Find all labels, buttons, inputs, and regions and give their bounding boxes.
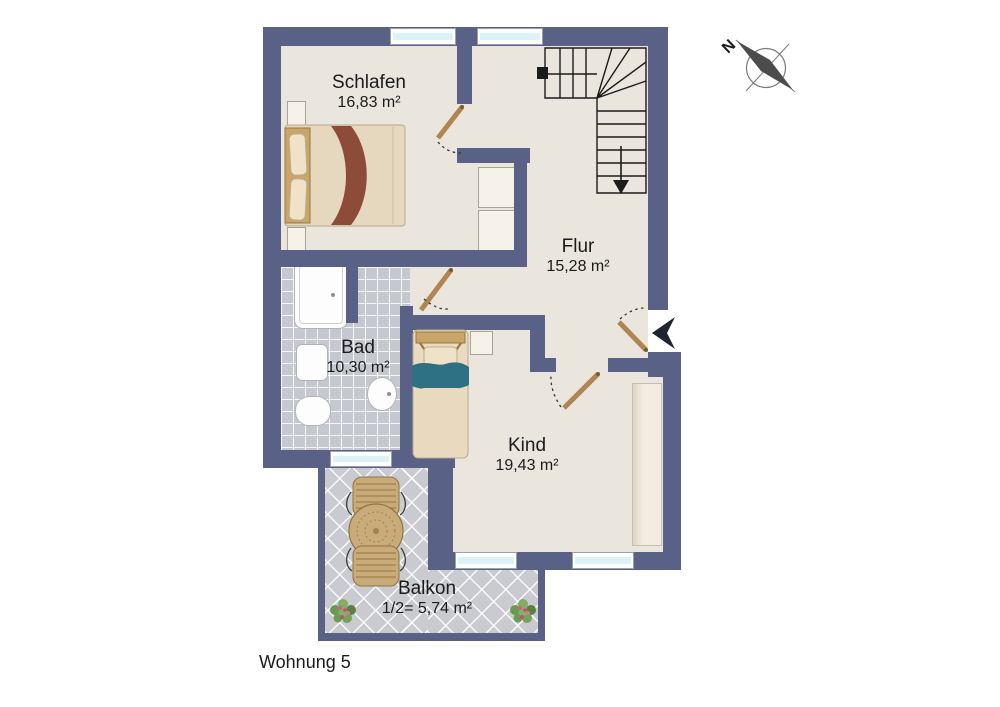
window-glass bbox=[458, 556, 514, 565]
wall-left bbox=[263, 27, 281, 468]
bathtub bbox=[294, 259, 348, 329]
wall-bad-stub bbox=[346, 267, 358, 323]
window-glass bbox=[575, 556, 631, 565]
room-area: 15,28 m² bbox=[546, 257, 609, 276]
compass-north-label: N bbox=[719, 37, 739, 57]
wall-top bbox=[263, 27, 668, 46]
room-name: Kind bbox=[495, 435, 558, 456]
balcony-parapet-right bbox=[538, 570, 545, 641]
hall-closet bbox=[478, 167, 515, 208]
room-name: Schlafen bbox=[332, 72, 406, 93]
room-name: Balkon bbox=[382, 578, 472, 599]
sink-faucet bbox=[387, 392, 391, 396]
nightstand bbox=[287, 101, 306, 126]
wall-kind-top bbox=[400, 315, 537, 330]
window bbox=[477, 28, 543, 45]
window-glass bbox=[393, 32, 453, 41]
window-glass bbox=[333, 455, 389, 463]
balcony-parapet-bottom bbox=[318, 633, 545, 641]
window bbox=[390, 28, 456, 45]
washbasin bbox=[296, 344, 328, 381]
wall-right-upper bbox=[648, 27, 668, 310]
wall-right-step bbox=[648, 352, 681, 377]
nightstand bbox=[470, 331, 493, 355]
wall-schlafen-right bbox=[457, 46, 472, 104]
wall-kind-door-right bbox=[608, 358, 648, 372]
room-label-flur: Flur 15,28 m² bbox=[546, 236, 609, 276]
compass-needle bbox=[737, 41, 793, 90]
room-label-kind: Kind 19,43 m² bbox=[495, 435, 558, 475]
window bbox=[330, 451, 392, 467]
wall-kind-door-left bbox=[537, 358, 556, 372]
toilet bbox=[295, 396, 331, 426]
room-area: 1/2= 5,74 m² bbox=[382, 599, 472, 618]
hall-closet bbox=[478, 210, 515, 252]
room-label-bad: Bad 10,30 m² bbox=[326, 337, 389, 377]
plan-title: Wohnung 5 bbox=[259, 652, 351, 673]
room-label-balkon: Balkon 1/2= 5,74 m² bbox=[382, 578, 472, 618]
room-label-schlafen: Schlafen 16,83 m² bbox=[332, 72, 406, 112]
compass-icon: N bbox=[719, 37, 795, 92]
floor-plan: N bbox=[0, 0, 1000, 707]
bathtub-drain bbox=[331, 293, 335, 297]
window bbox=[572, 552, 634, 569]
window bbox=[455, 552, 517, 569]
wardrobe bbox=[632, 383, 662, 546]
room-name: Bad bbox=[326, 337, 389, 358]
wall-schlafen-bottom bbox=[281, 250, 527, 267]
sink bbox=[367, 377, 397, 411]
entrance-opening bbox=[648, 310, 668, 352]
room-area: 16,83 m² bbox=[332, 93, 406, 112]
room-area: 10,30 m² bbox=[326, 358, 389, 377]
room-area: 19,43 m² bbox=[495, 456, 558, 475]
window-glass bbox=[480, 32, 540, 41]
wall-niche-top bbox=[457, 148, 530, 163]
balcony-parapet-left bbox=[318, 468, 325, 641]
wall-niche-right bbox=[514, 163, 527, 255]
wall-right-lower bbox=[663, 377, 681, 570]
room-name: Flur bbox=[546, 236, 609, 257]
